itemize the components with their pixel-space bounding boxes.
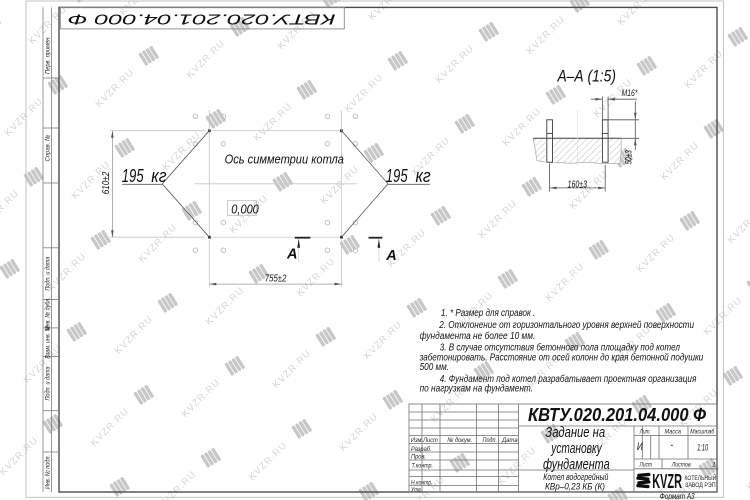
svg-text:КВТУ.020.201.04.000 Ф: КВТУ.020.201.04.000 Ф (528, 405, 706, 425)
svg-text:-: - (670, 440, 673, 450)
svg-text:Пров.: Пров. (411, 454, 426, 461)
svg-text:KVZR.RU: KVZR.RU (659, 140, 702, 183)
svg-text:№ докум.: № докум. (447, 436, 472, 444)
svg-text:3. В случае отсутствия бетонно: 3. В случае отсутствия бетонного пола пл… (440, 341, 681, 353)
svg-text:755±2: 755±2 (265, 274, 287, 285)
svg-text:Подп.: Подп. (483, 436, 498, 444)
svg-text:1. * Размер для справок .: 1. * Размер для справок . (441, 308, 535, 319)
svg-text:KVZR.RU: KVZR.RU (745, 450, 750, 493)
svg-text:Т.контр.: Т.контр. (412, 463, 434, 470)
svg-text:50±3: 50±3 (623, 150, 634, 165)
svg-text:Подп. и дата: Подп. и дата (43, 366, 51, 400)
svg-text:KVZR.RU: KVZR.RU (0, 188, 22, 231)
svg-text:А: А (385, 248, 396, 264)
svg-text:1: 1 (712, 462, 716, 469)
svg-text:Утв.: Утв. (410, 486, 422, 493)
svg-text:Задание на: Задание на (545, 425, 605, 441)
svg-text:KVZR.RU: KVZR.RU (616, 0, 659, 28)
svg-text:KVZR.RU: KVZR.RU (3, 96, 46, 139)
svg-text:КВТУ.020.201.04.000 Ф: КВТУ.020.201.04.000 Ф (68, 10, 336, 26)
svg-text:установку: установку (551, 441, 603, 457)
svg-text:KVZR.RU: KVZR.RU (137, 222, 180, 265)
svg-text:KVZR.RU: KVZR.RU (319, 164, 362, 207)
svg-text:Лит.: Лит. (639, 429, 651, 436)
svg-text:KVZR.RU: KVZR.RU (544, 261, 587, 304)
svg-text:KVZR.RU: KVZR.RU (726, 203, 750, 246)
svg-text:забетонировать. Расстояние от: забетонировать. Расстояние от осей колон… (419, 352, 704, 364)
svg-text:Лист: Лист (639, 462, 652, 469)
svg-text:KVZR.RU: KVZR.RU (94, 67, 137, 110)
svg-text:KVZR.RU: KVZR.RU (156, 469, 199, 500)
svg-text:кг: кг (416, 166, 431, 186)
svg-text:KVZR.RU: KVZR.RU (252, 101, 295, 144)
svg-text:KVZR.RU: KVZR.RU (343, 72, 386, 115)
svg-text:М16*: М16* (622, 88, 638, 98)
svg-text:КВр–0,23 КБ (К): КВр–0,23 КБ (К) (545, 481, 605, 491)
svg-text:Масса: Масса (665, 429, 682, 436)
svg-text:Инв. № дубл.: Инв. № дубл. (43, 297, 51, 330)
svg-text:KVZR.RU: KVZR.RU (271, 348, 314, 391)
svg-text:160±3: 160±3 (568, 179, 588, 190)
svg-text:KVZR.RU: KVZR.RU (338, 411, 381, 454)
svg-text:KVZR.RU: KVZR.RU (683, 48, 726, 91)
svg-text:Перв. примен.: Перв. примен. (44, 36, 51, 74)
svg-text:Н.контр.: Н.контр. (411, 479, 433, 486)
svg-text:KVZR.RU: KVZR.RU (367, 0, 410, 23)
svg-text:кг: кг (151, 166, 166, 186)
svg-text:Ось симметрии котла: Ось симметрии котла (225, 152, 344, 166)
svg-text:195: 195 (386, 166, 409, 186)
svg-text:Справ. №: Справ. № (44, 135, 51, 162)
svg-text:610±2: 610±2 (101, 171, 112, 194)
svg-text:KVZR.RU: KVZR.RU (295, 256, 338, 299)
svg-text:KVZR.RU: KVZR.RU (434, 43, 477, 86)
svg-text:Взам. инв. №: Взам. инв. № (44, 326, 51, 359)
svg-text:Масштаб: Масштаб (690, 428, 715, 436)
svg-text:KVZR.RU: KVZR.RU (477, 198, 520, 241)
svg-text:Листов: Листов (671, 462, 691, 469)
svg-text:фундамента: фундамента (543, 457, 610, 473)
svg-text:KVZR.RU: KVZR.RU (180, 377, 223, 420)
svg-text:Дата: Дата (501, 437, 518, 444)
svg-text:0,000: 0,000 (231, 201, 259, 216)
svg-text:И: И (637, 441, 643, 453)
svg-text:ЗАВОД РЭП: ЗАВОД РЭП (685, 483, 716, 489)
svg-text:Подп. и дата: Подп. и дата (43, 256, 51, 290)
svg-text:KVZR.RU: KVZR.RU (185, 38, 228, 81)
svg-text:KVZR: KVZR (652, 470, 682, 493)
svg-text:КОТЕЛЬНЫЙ: КОТЕЛЬНЫЙ (685, 474, 717, 482)
svg-text:Изм.Лист: Изм.Лист (411, 437, 438, 444)
svg-text:1:10: 1:10 (697, 442, 708, 453)
svg-text:KVZR.RU: KVZR.RU (161, 130, 204, 173)
svg-text:по нагрузкам на фундамент.: по нагрузкам на фундамент. (420, 383, 533, 395)
svg-text:500 мм.: 500 мм. (420, 362, 449, 373)
svg-text:KVZR.RU: KVZR.RU (46, 251, 89, 294)
svg-text:KVZR.RU: KVZR.RU (0, 435, 41, 478)
svg-text:фундамента не более 10 мм.: фундамента не более 10 мм. (420, 330, 536, 342)
svg-text:Инв. № подл.: Инв. № подл. (43, 455, 51, 489)
svg-text:KVZR.RU: KVZR.RU (204, 285, 247, 328)
svg-text:А: А (286, 247, 297, 263)
svg-text:KVZR.RU: KVZR.RU (89, 406, 132, 449)
svg-text:KVZR.RU: KVZR.RU (362, 319, 405, 362)
svg-text:KVZR.RU: KVZR.RU (113, 314, 156, 357)
svg-text:KVZR.RU: KVZR.RU (496, 445, 539, 488)
svg-text:KVZR.RU: KVZR.RU (525, 14, 568, 57)
svg-text:2. Отклонение от горизонтально: 2. Отклонение от горизонтального уровня … (438, 320, 694, 331)
svg-text:195: 195 (122, 166, 145, 186)
svg-text:А–А (1:5): А–А (1:5) (557, 67, 616, 86)
svg-text:Разраб.: Разраб. (411, 445, 432, 453)
svg-text:KVZR.RU: KVZR.RU (635, 232, 678, 275)
svg-text:Формат А3: Формат А3 (660, 492, 695, 500)
svg-text:KVZR.RU: KVZR.RU (247, 440, 290, 483)
